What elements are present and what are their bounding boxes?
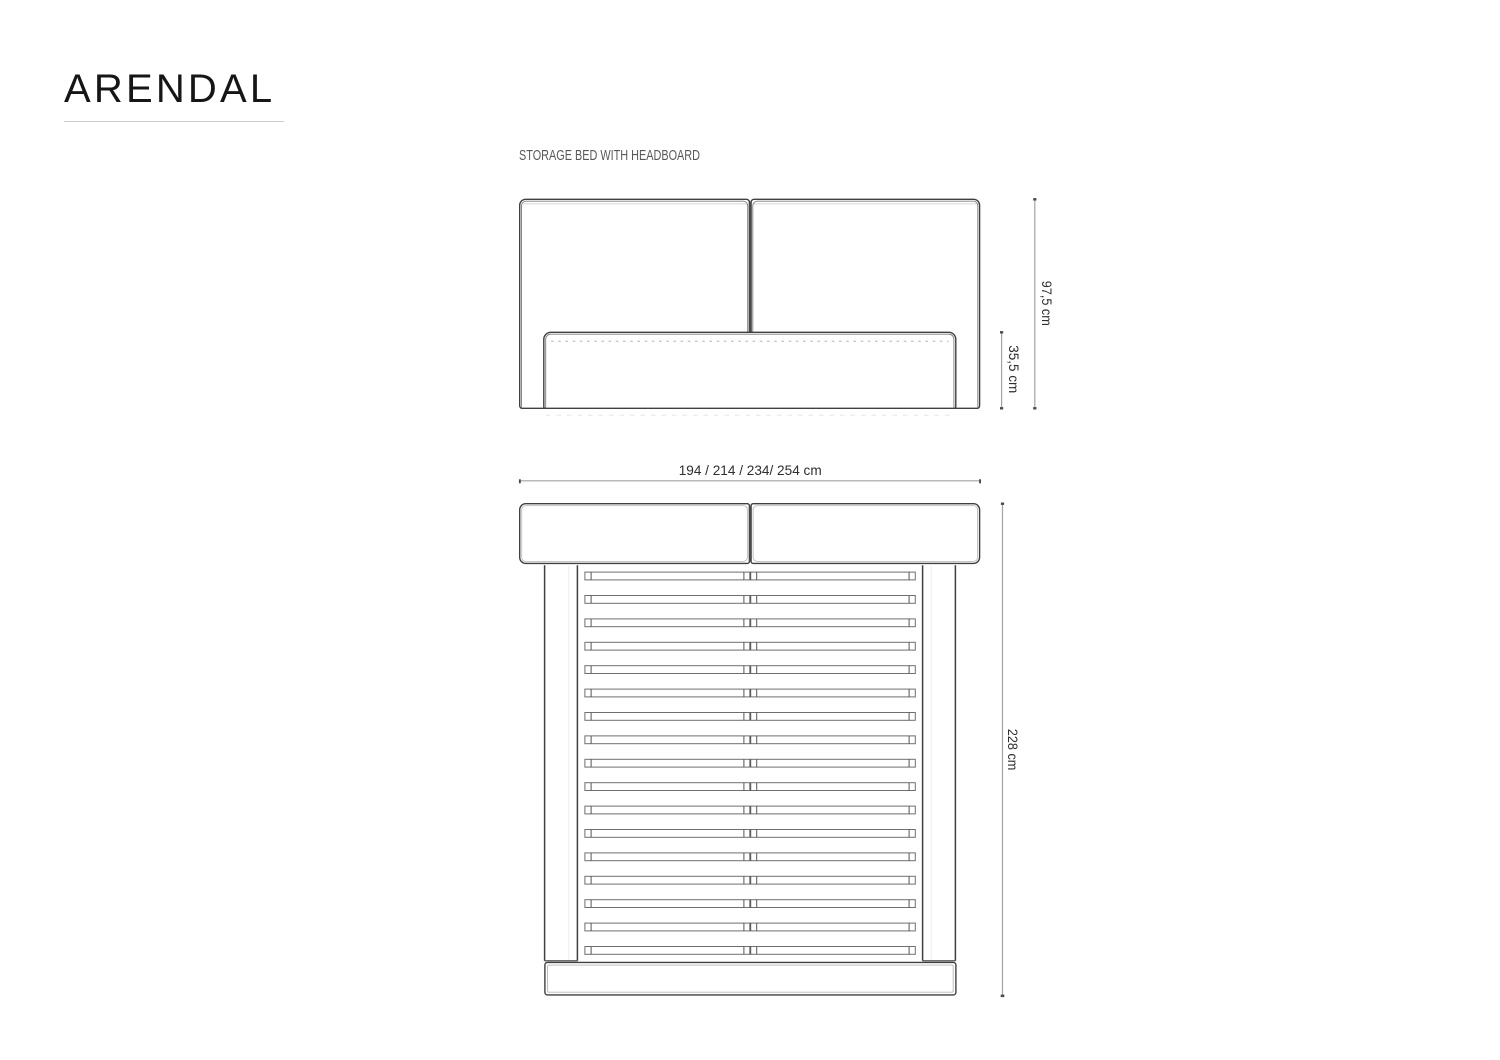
svg-text:97,5 cm: 97,5 cm	[1039, 281, 1054, 326]
svg-text:35,5 cm: 35,5 cm	[1006, 345, 1021, 393]
svg-text:194 / 214 / 234/ 254 cm: 194 / 214 / 234/ 254 cm	[679, 462, 822, 478]
svg-text:228 cm: 228 cm	[1005, 729, 1020, 771]
svg-text:STORAGE BED WITH HEADBOARD: STORAGE BED WITH HEADBOARD	[519, 148, 700, 164]
